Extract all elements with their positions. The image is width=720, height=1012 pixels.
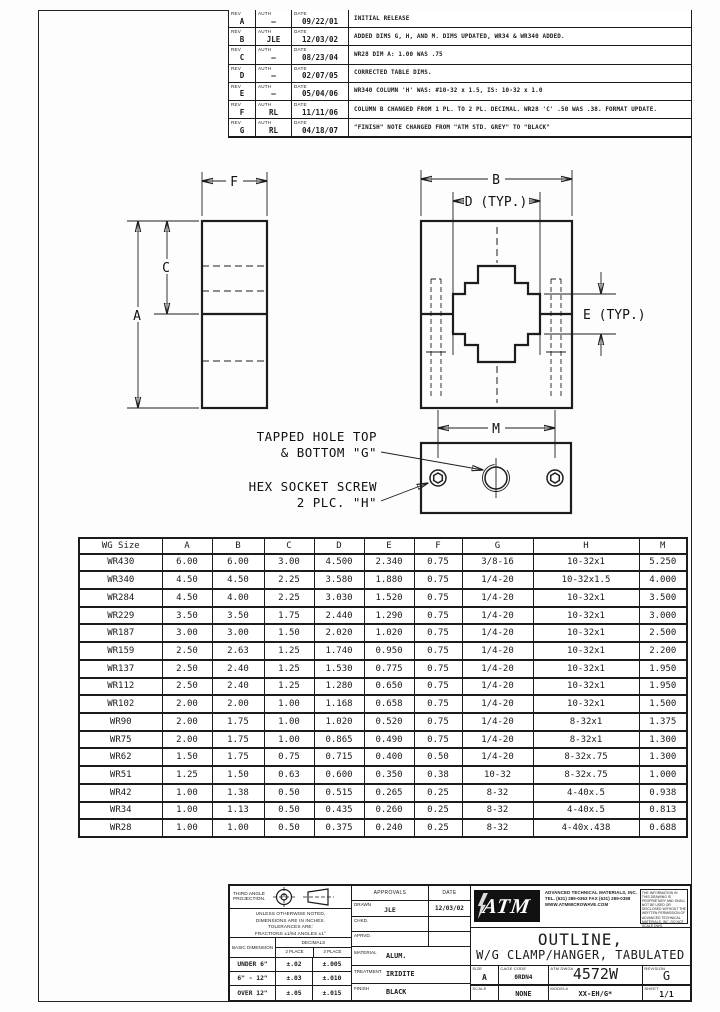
approval-row: DRAWNJLE12/03/02 xyxy=(352,901,470,917)
table-cell: 0.75 xyxy=(414,624,462,642)
tapped-hole xyxy=(483,458,510,498)
dim-label-A: A xyxy=(133,309,141,324)
table-cell: 4.500 xyxy=(314,554,364,572)
table-cell: 0.50 xyxy=(264,784,314,802)
table-cell: 8-32 xyxy=(462,784,533,802)
table-cell: 4.50 xyxy=(212,571,264,589)
table-row: WR902.001.751.001.0200.5200.751/4-208-32… xyxy=(79,713,687,731)
table-cell: 2.020 xyxy=(314,624,364,642)
table-cell: 0.435 xyxy=(314,802,364,820)
drawing-title: OUTLINE, W/G CLAMP/HANGER, TABULATED xyxy=(471,928,690,966)
table-cell: 1.300 xyxy=(639,748,687,766)
table-cell: 4-40x.5 xyxy=(533,802,639,820)
revision-date-cell: DATE02/07/05 xyxy=(292,65,349,82)
company-info: ADVANCED TECHNICAL MATERIALS, INC. TEL. … xyxy=(542,886,640,927)
revision-row: REVFAUTHRLDATE11/11/06COLUMN B CHANGED F… xyxy=(229,101,691,119)
column-header: F xyxy=(414,538,462,554)
hex-screw-left xyxy=(430,470,446,486)
table-cell: 0.865 xyxy=(314,731,364,749)
scale-value: NONE xyxy=(515,990,531,1001)
column-header: A xyxy=(162,538,212,554)
table-cell: 4.50 xyxy=(162,571,212,589)
table-cell: 1/4-20 xyxy=(462,713,533,731)
hex-screw-note-line2: 2 PLC. "H" xyxy=(297,495,377,510)
table-cell: 1.00 xyxy=(162,819,212,837)
table-cell: 1/4-20 xyxy=(462,731,533,749)
treatment-value: IRIDITE xyxy=(386,970,415,978)
table-cell: 1/4-20 xyxy=(462,607,533,625)
revision-date-cell: DATE09/22/01 xyxy=(292,10,349,27)
column-header: M xyxy=(639,538,687,554)
table-cell: 2.00 xyxy=(162,695,212,713)
company-website: WWW.ATMMICROWAVE.COM xyxy=(545,902,640,908)
table-cell: 8-32 xyxy=(462,802,533,820)
material-row: MATERIAL ALUM. xyxy=(352,947,470,965)
table-cell: 1.00 xyxy=(264,695,314,713)
table-cell: 2.50 xyxy=(162,642,212,660)
table-cell: WR284 xyxy=(79,589,162,607)
table-cell: 0.75 xyxy=(414,731,462,749)
table-cell: 1.00 xyxy=(162,784,212,802)
table-cell: 10-32x1 xyxy=(533,554,639,572)
approvals-date-header: DATE xyxy=(429,886,470,900)
table-cell: 1.740 xyxy=(314,642,364,660)
approvals-header: APPROVALS xyxy=(352,886,429,900)
revision-date-cell: DATE05/04/06 xyxy=(292,83,349,100)
column-header: G xyxy=(462,538,533,554)
revision-letter-cell: REVE xyxy=(229,83,256,100)
table-cell: 6.00 xyxy=(162,554,212,572)
table-cell: 0.75 xyxy=(414,695,462,713)
table-cell: 0.50 xyxy=(264,802,314,820)
hex-screw-right xyxy=(547,470,563,486)
table-cell: 3.030 xyxy=(314,589,364,607)
revision-date-cell: DATE12/03/02 xyxy=(292,28,349,45)
table-cell: 3.00 xyxy=(162,624,212,642)
table-cell: 4.00 xyxy=(212,589,264,607)
table-cell: 3.00 xyxy=(212,624,264,642)
tolerance-note-line: FRACTIONS ±1/64 ANGLES ±1° xyxy=(230,931,351,937)
table-cell: 1.50 xyxy=(264,624,314,642)
table-cell: 3/8-16 xyxy=(462,554,533,572)
table-cell: 0.350 xyxy=(364,766,414,784)
revision-row: REVEAUTH—DATE05/04/06WR340 COLUMN 'H' WA… xyxy=(229,83,691,101)
revision-auth-cell: AUTH— xyxy=(256,83,292,100)
tolerance-row: OVER 12"±.05±.015 xyxy=(230,986,351,1000)
table-cell: 10-32x1.5 xyxy=(533,571,639,589)
cage-code-value: 0RDN4 xyxy=(514,974,532,984)
table-cell: 0.25 xyxy=(414,784,462,802)
table-row: WR752.001.751.000.8650.4900.751/4-208-32… xyxy=(79,731,687,749)
table-cell: 4.000 xyxy=(639,571,687,589)
table-cell: 0.265 xyxy=(364,784,414,802)
table-cell: 1.000 xyxy=(639,766,687,784)
revision-letter-cell: REVG xyxy=(229,119,256,136)
table-cell: 10-32x1 xyxy=(533,695,639,713)
table-cell: WR51 xyxy=(79,766,162,784)
finish-value: BLACK xyxy=(386,988,406,996)
table-cell: 0.688 xyxy=(639,819,687,837)
table-cell: 1/4-20 xyxy=(462,642,533,660)
table-cell: 4-40x.438 xyxy=(533,819,639,837)
column-header: D xyxy=(314,538,364,554)
tolerance-row: 6" - 12"±.03±.010 xyxy=(230,972,351,986)
table-cell: 1.950 xyxy=(639,660,687,678)
tolerance-notes: UNLESS OTHERWISE NOTED,DIMENSIONS ARE IN… xyxy=(230,909,351,938)
table-cell: 1/4-20 xyxy=(462,695,533,713)
table-cell: 0.75 xyxy=(414,607,462,625)
table-cell: 10-32x1 xyxy=(533,642,639,660)
table-cell: 8-32x.75 xyxy=(533,748,639,766)
tapped-hole-note-line2: & BOTTOM "G" xyxy=(281,445,377,460)
table-cell: 1.50 xyxy=(212,766,264,784)
table-cell: 2.00 xyxy=(212,695,264,713)
table-cell: 0.50 xyxy=(264,819,314,837)
drawing-sheet: REVAAUTH—DATE09/22/01INITIAL RELEASEREVB… xyxy=(0,0,720,1012)
revision-description: ADDED DIMS G, H, AND M. DIMS UPDATED, WR… xyxy=(349,28,691,45)
table-cell: 0.775 xyxy=(364,660,414,678)
table-cell: 0.75 xyxy=(414,660,462,678)
dim-label-F: F xyxy=(230,175,238,190)
table-cell: WR28 xyxy=(79,819,162,837)
table-cell: 0.938 xyxy=(639,784,687,802)
column-header: WG Size xyxy=(79,538,162,554)
revision-description: COLUMN B CHANGED FROM 1 PL. TO 2 PL. DEC… xyxy=(349,101,691,118)
dim-label-B: B xyxy=(492,173,500,188)
table-row: WR2293.503.501.752.4401.2900.751/4-2010-… xyxy=(79,607,687,625)
table-cell: WR62 xyxy=(79,748,162,766)
revision-description: "FINISH" NOTE CHANGED FROM "ATM STD. GRE… xyxy=(349,119,691,136)
table-cell: 10-32 xyxy=(462,766,533,784)
revision-date-cell: DATE08/23/04 xyxy=(292,46,349,63)
dim-label-E: E (TYP.) xyxy=(583,308,646,323)
table-cell: WR229 xyxy=(79,607,162,625)
revision-row: REVAAUTH—DATE09/22/01INITIAL RELEASE xyxy=(229,10,691,28)
dimension-table-header: WG SizeABCDEFGHM xyxy=(79,538,687,554)
revision-row: REVBAUTHJLEDATE12/03/02ADDED DIMS G, H, … xyxy=(229,28,691,46)
table-cell: 1.290 xyxy=(364,607,414,625)
table-cell: 0.260 xyxy=(364,802,414,820)
approval-row: CHKD. xyxy=(352,917,470,932)
table-row: WR3404.504.502.253.5801.8800.751/4-2010-… xyxy=(79,571,687,589)
table-cell: 8-32x.75 xyxy=(533,766,639,784)
table-cell: 1.280 xyxy=(314,678,364,696)
table-cell: 1.950 xyxy=(639,678,687,696)
proprietary-note: THE INFORMATION IN THIS DRAWING IS PROPR… xyxy=(640,889,688,924)
tolerance-col1-header: BASIC DIMENSION xyxy=(230,938,276,957)
tolerance-3place-header: 3 PLACE xyxy=(314,947,351,957)
table-cell: 1.300 xyxy=(639,731,687,749)
table-cell: 2.200 xyxy=(639,642,687,660)
table-cell: 5.250 xyxy=(639,554,687,572)
table-cell: 4.50 xyxy=(162,589,212,607)
table-cell: WR159 xyxy=(79,642,162,660)
waveguide-cross-opening xyxy=(453,266,540,362)
tapped-hole-note-line1: TAPPED HOLE TOP xyxy=(257,429,377,444)
table-cell: 0.75 xyxy=(414,571,462,589)
model-value: XX-EH/G* xyxy=(579,990,613,1001)
title-line2: W/G CLAMP/HANGER, TABULATED xyxy=(471,948,690,962)
bottom-view: M xyxy=(421,410,571,513)
table-cell: 0.75 xyxy=(414,554,462,572)
table-row: WR1022.002.001.001.1680.6580.751/4-2010-… xyxy=(79,695,687,713)
table-cell: 3.00 xyxy=(264,554,314,572)
finish-row: FINISH BLACK xyxy=(352,984,470,1000)
revision-letter-cell: REVC xyxy=(229,46,256,63)
drawing-number-value: 4572W xyxy=(573,966,618,984)
callout-notes: TAPPED HOLE TOP & BOTTOM "G" HEX SOCKET … xyxy=(249,429,483,510)
table-cell: 1.880 xyxy=(364,571,414,589)
table-row: WR1873.003.001.502.0201.0200.751/4-2010-… xyxy=(79,624,687,642)
table-cell: 1.25 xyxy=(264,660,314,678)
revision-letter-cell: REVB xyxy=(229,28,256,45)
table-cell: WR187 xyxy=(79,624,162,642)
table-cell: 1.168 xyxy=(314,695,364,713)
revision-row: REVGAUTHRLDATE04/18/07"FINISH" NOTE CHAN… xyxy=(229,119,691,137)
table-cell: 1/4-20 xyxy=(462,678,533,696)
table-cell: 8-32x1 xyxy=(533,731,639,749)
revision-auth-cell: AUTH— xyxy=(256,10,292,27)
title-line1: OUTLINE, xyxy=(471,931,690,948)
table-cell: 1.375 xyxy=(639,713,687,731)
dim-label-M: M xyxy=(492,422,500,437)
table-cell: 2.50 xyxy=(162,678,212,696)
table-cell: 1.13 xyxy=(212,802,264,820)
table-cell: 1.25 xyxy=(264,642,314,660)
table-row: WR1122.502.401.251.2800.6500.751/4-2010-… xyxy=(79,678,687,696)
company-title-section: ATM ADVANCED TECHNICAL MATERIALS, INC. T… xyxy=(470,886,690,1000)
table-cell: 1/4-20 xyxy=(462,748,533,766)
tolerance-section: THIRD ANGLE PROJECTION. UNLESS OTHERWISE… xyxy=(230,886,351,1000)
size-cell: SIZE A xyxy=(471,966,499,984)
approvals-section: APPROVALS DATE DRAWNJLE12/03/02CHKD.APRV… xyxy=(351,886,470,1000)
table-cell: 3.580 xyxy=(314,571,364,589)
projection-label: THIRD ANGLE PROJECTION. xyxy=(230,892,270,903)
title-block: THIRD ANGLE PROJECTION. UNLESS OTHERWISE… xyxy=(228,884,692,1002)
table-cell: 2.00 xyxy=(162,713,212,731)
dim-label-D: D (TYP.) xyxy=(465,195,528,210)
table-cell: 1.00 xyxy=(162,802,212,820)
drawing-views: F C A xyxy=(40,145,695,535)
table-cell: 0.658 xyxy=(364,695,414,713)
revision-date-cell: DATE11/11/06 xyxy=(292,101,349,118)
dimension-table-body: WR4306.006.003.004.5002.3400.753/8-1610-… xyxy=(79,554,687,838)
table-cell: WR340 xyxy=(79,571,162,589)
table-cell: 3.50 xyxy=(162,607,212,625)
revision-date-cell: DATE04/18/07 xyxy=(292,119,349,136)
table-cell: 0.75 xyxy=(414,589,462,607)
table-row: WR421.001.380.500.5150.2650.258-324-40x.… xyxy=(79,784,687,802)
tolerance-rows: UNDER 6"±.02±.0056" - 12"±.03±.010OVER 1… xyxy=(230,958,351,1000)
revision-row: REVDAUTH—DATE02/07/05CORRECTED TABLE DIM… xyxy=(229,65,691,83)
revision-description: WR340 COLUMN 'H' WAS: #10-32 x 1.5, IS: … xyxy=(349,83,691,100)
table-cell: 0.490 xyxy=(364,731,414,749)
table-cell: 8-32 xyxy=(462,819,533,837)
revision-auth-cell: AUTH— xyxy=(256,46,292,63)
sheet-value: 1/1 xyxy=(659,990,673,1001)
table-cell: 2.63 xyxy=(212,642,264,660)
treatment-label: TREATMENT xyxy=(352,969,386,980)
table-cell: 0.38 xyxy=(414,766,462,784)
table-cell: 0.950 xyxy=(364,642,414,660)
table-cell: 1.25 xyxy=(264,678,314,696)
tolerance-table: BASIC DIMENSION DECIMALS 2 PLACE 3 PLACE… xyxy=(230,938,351,1000)
table-cell: 10-32x1 xyxy=(533,678,639,696)
projection-row: THIRD ANGLE PROJECTION. xyxy=(230,886,351,909)
revision-description: WR28 DIM A: 1.00 WAS .75 xyxy=(349,46,691,63)
table-cell: 0.600 xyxy=(314,766,364,784)
table-cell: 1.00 xyxy=(264,713,314,731)
table-cell: 10-32x1 xyxy=(533,607,639,625)
table-cell: 1.50 xyxy=(162,748,212,766)
table-cell: 1.530 xyxy=(314,660,364,678)
side-view: F C A xyxy=(127,172,267,408)
size-value: A xyxy=(482,973,487,984)
drawing-number-cell: ATM DWG# 4572W xyxy=(549,966,643,984)
table-cell: 3.500 xyxy=(639,589,687,607)
column-header: C xyxy=(264,538,314,554)
revision-auth-cell: AUTHRL xyxy=(256,101,292,118)
table-cell: 1.520 xyxy=(364,589,414,607)
table-cell: 0.75 xyxy=(264,748,314,766)
table-cell: 1/4-20 xyxy=(462,571,533,589)
table-cell: 2.40 xyxy=(212,660,264,678)
table-cell: 1/4-20 xyxy=(462,589,533,607)
table-row: WR2844.504.002.253.0301.5200.751/4-2010-… xyxy=(79,589,687,607)
table-cell: 0.75 xyxy=(414,642,462,660)
table-cell: WR90 xyxy=(79,713,162,731)
table-cell: WR34 xyxy=(79,802,162,820)
table-cell: 1.500 xyxy=(639,695,687,713)
revision-letter-cell: REVF xyxy=(229,101,256,118)
table-cell: 2.440 xyxy=(314,607,364,625)
table-cell: 0.63 xyxy=(264,766,314,784)
table-row: WR281.001.000.500.3750.2400.258-324-40x.… xyxy=(79,819,687,837)
dim-label-C: C xyxy=(162,261,170,276)
table-cell: WR102 xyxy=(79,695,162,713)
material-label: MATERIAL xyxy=(352,950,386,961)
column-header: B xyxy=(212,538,264,554)
table-cell: 10-32x1 xyxy=(533,624,639,642)
table-cell: 2.00 xyxy=(162,731,212,749)
scale-label-cell: SCALE xyxy=(471,986,499,1001)
table-cell: 0.375 xyxy=(314,819,364,837)
scale-value-cell: NONE xyxy=(499,986,549,1001)
table-cell: 3.000 xyxy=(639,607,687,625)
table-cell: 2.340 xyxy=(364,554,414,572)
table-cell: WR137 xyxy=(79,660,162,678)
table-cell: 0.813 xyxy=(639,802,687,820)
front-view: B D (TYP.) E (TYP.) xyxy=(421,170,646,408)
table-row: WR1372.502.401.251.5300.7750.751/4-2010-… xyxy=(79,660,687,678)
revision-auth-cell: AUTH— xyxy=(256,65,292,82)
revision-description: INITIAL RELEASE xyxy=(349,10,691,27)
table-cell: 1.25 xyxy=(162,766,212,784)
approval-row: APRVD. xyxy=(352,932,470,947)
table-cell: 1.75 xyxy=(212,748,264,766)
revision-letter-cell: REVD xyxy=(229,65,256,82)
table-cell: 0.400 xyxy=(364,748,414,766)
table-cell: 0.515 xyxy=(314,784,364,802)
atm-logo: ATM xyxy=(474,890,540,922)
table-cell: 2.50 xyxy=(162,660,212,678)
table-cell: 2.500 xyxy=(639,624,687,642)
table-cell: 3.50 xyxy=(212,607,264,625)
revision-letter-cell: REVA xyxy=(229,10,256,27)
table-cell: 1.75 xyxy=(264,607,314,625)
revision-description: CORRECTED TABLE DIMS. xyxy=(349,65,691,82)
table-cell: 10-32x1 xyxy=(533,589,639,607)
table-cell: 1/4-20 xyxy=(462,624,533,642)
model-cell: MODEL# XX-EH/G* xyxy=(549,986,643,1001)
dimension-table: WG SizeABCDEFGHM WR4306.006.003.004.5002… xyxy=(78,537,688,838)
table-cell: 6.00 xyxy=(212,554,264,572)
table-cell: WR430 xyxy=(79,554,162,572)
table-cell: 0.75 xyxy=(414,678,462,696)
table-cell: 1/4-20 xyxy=(462,660,533,678)
table-cell: WR112 xyxy=(79,678,162,696)
material-value: ALUM. xyxy=(386,952,406,960)
table-cell: 1.020 xyxy=(364,624,414,642)
table-cell: 0.50 xyxy=(414,748,462,766)
column-header: H xyxy=(533,538,639,554)
table-cell: WR42 xyxy=(79,784,162,802)
table-cell: 1.00 xyxy=(212,819,264,837)
column-header: E xyxy=(364,538,414,554)
table-cell: 2.40 xyxy=(212,678,264,696)
table-cell: 1.75 xyxy=(212,731,264,749)
table-cell: 8-32x1 xyxy=(533,713,639,731)
third-angle-projection-icon xyxy=(270,886,340,908)
table-cell: 0.715 xyxy=(314,748,364,766)
approvals-rows: DRAWNJLE12/03/02CHKD.APRVD. xyxy=(352,901,470,947)
tolerance-decimals-header: DECIMALS xyxy=(276,938,351,947)
table-cell: 0.520 xyxy=(364,713,414,731)
table-row: WR341.001.130.500.4350.2600.258-324-40x.… xyxy=(79,802,687,820)
table-cell: 2.25 xyxy=(264,589,314,607)
table-row: WR621.501.750.750.7150.4000.501/4-208-32… xyxy=(79,748,687,766)
table-cell: 0.25 xyxy=(414,819,462,837)
tolerance-row: UNDER 6"±.02±.005 xyxy=(230,958,351,972)
table-cell: 2.25 xyxy=(264,571,314,589)
table-cell: 1.020 xyxy=(314,713,364,731)
revision-row: REVCAUTH—DATE08/23/04WR28 DIM A: 1.00 WA… xyxy=(229,46,691,64)
revision-auth-cell: AUTHJLE xyxy=(256,28,292,45)
table-cell: 10-32x1 xyxy=(533,660,639,678)
finish-label: FINISH xyxy=(352,986,386,997)
table-cell: 0.240 xyxy=(364,819,414,837)
table-cell: 1.38 xyxy=(212,784,264,802)
sheet-cell: SHEET 1/1 xyxy=(643,986,690,1001)
cage-code-cell: CAGE CODE 0RDN4 xyxy=(499,966,549,984)
table-cell: 0.25 xyxy=(414,802,462,820)
tolerance-2place-header: 2 PLACE xyxy=(276,947,314,957)
table-cell: WR75 xyxy=(79,731,162,749)
table-cell: 0.650 xyxy=(364,678,414,696)
table-row: WR1592.502.631.251.7400.9500.751/4-2010-… xyxy=(79,642,687,660)
table-row: WR511.251.500.630.6000.3500.3810-328-32x… xyxy=(79,766,687,784)
revision-auth-cell: AUTHRL xyxy=(256,119,292,136)
hex-screw-note-line1: HEX SOCKET SCREW xyxy=(249,479,377,494)
table-cell: 1.75 xyxy=(212,713,264,731)
treatment-row: TREATMENT IRIDITE xyxy=(352,966,470,984)
revision-table: REVAAUTH—DATE09/22/01INITIAL RELEASEREVB… xyxy=(228,10,692,138)
table-cell: 4-40x.5 xyxy=(533,784,639,802)
table-row: WR4306.006.003.004.5002.3400.753/8-1610-… xyxy=(79,554,687,572)
table-cell: 0.75 xyxy=(414,713,462,731)
revision-cell: REVISION G xyxy=(643,966,690,984)
table-cell: 1.00 xyxy=(264,731,314,749)
